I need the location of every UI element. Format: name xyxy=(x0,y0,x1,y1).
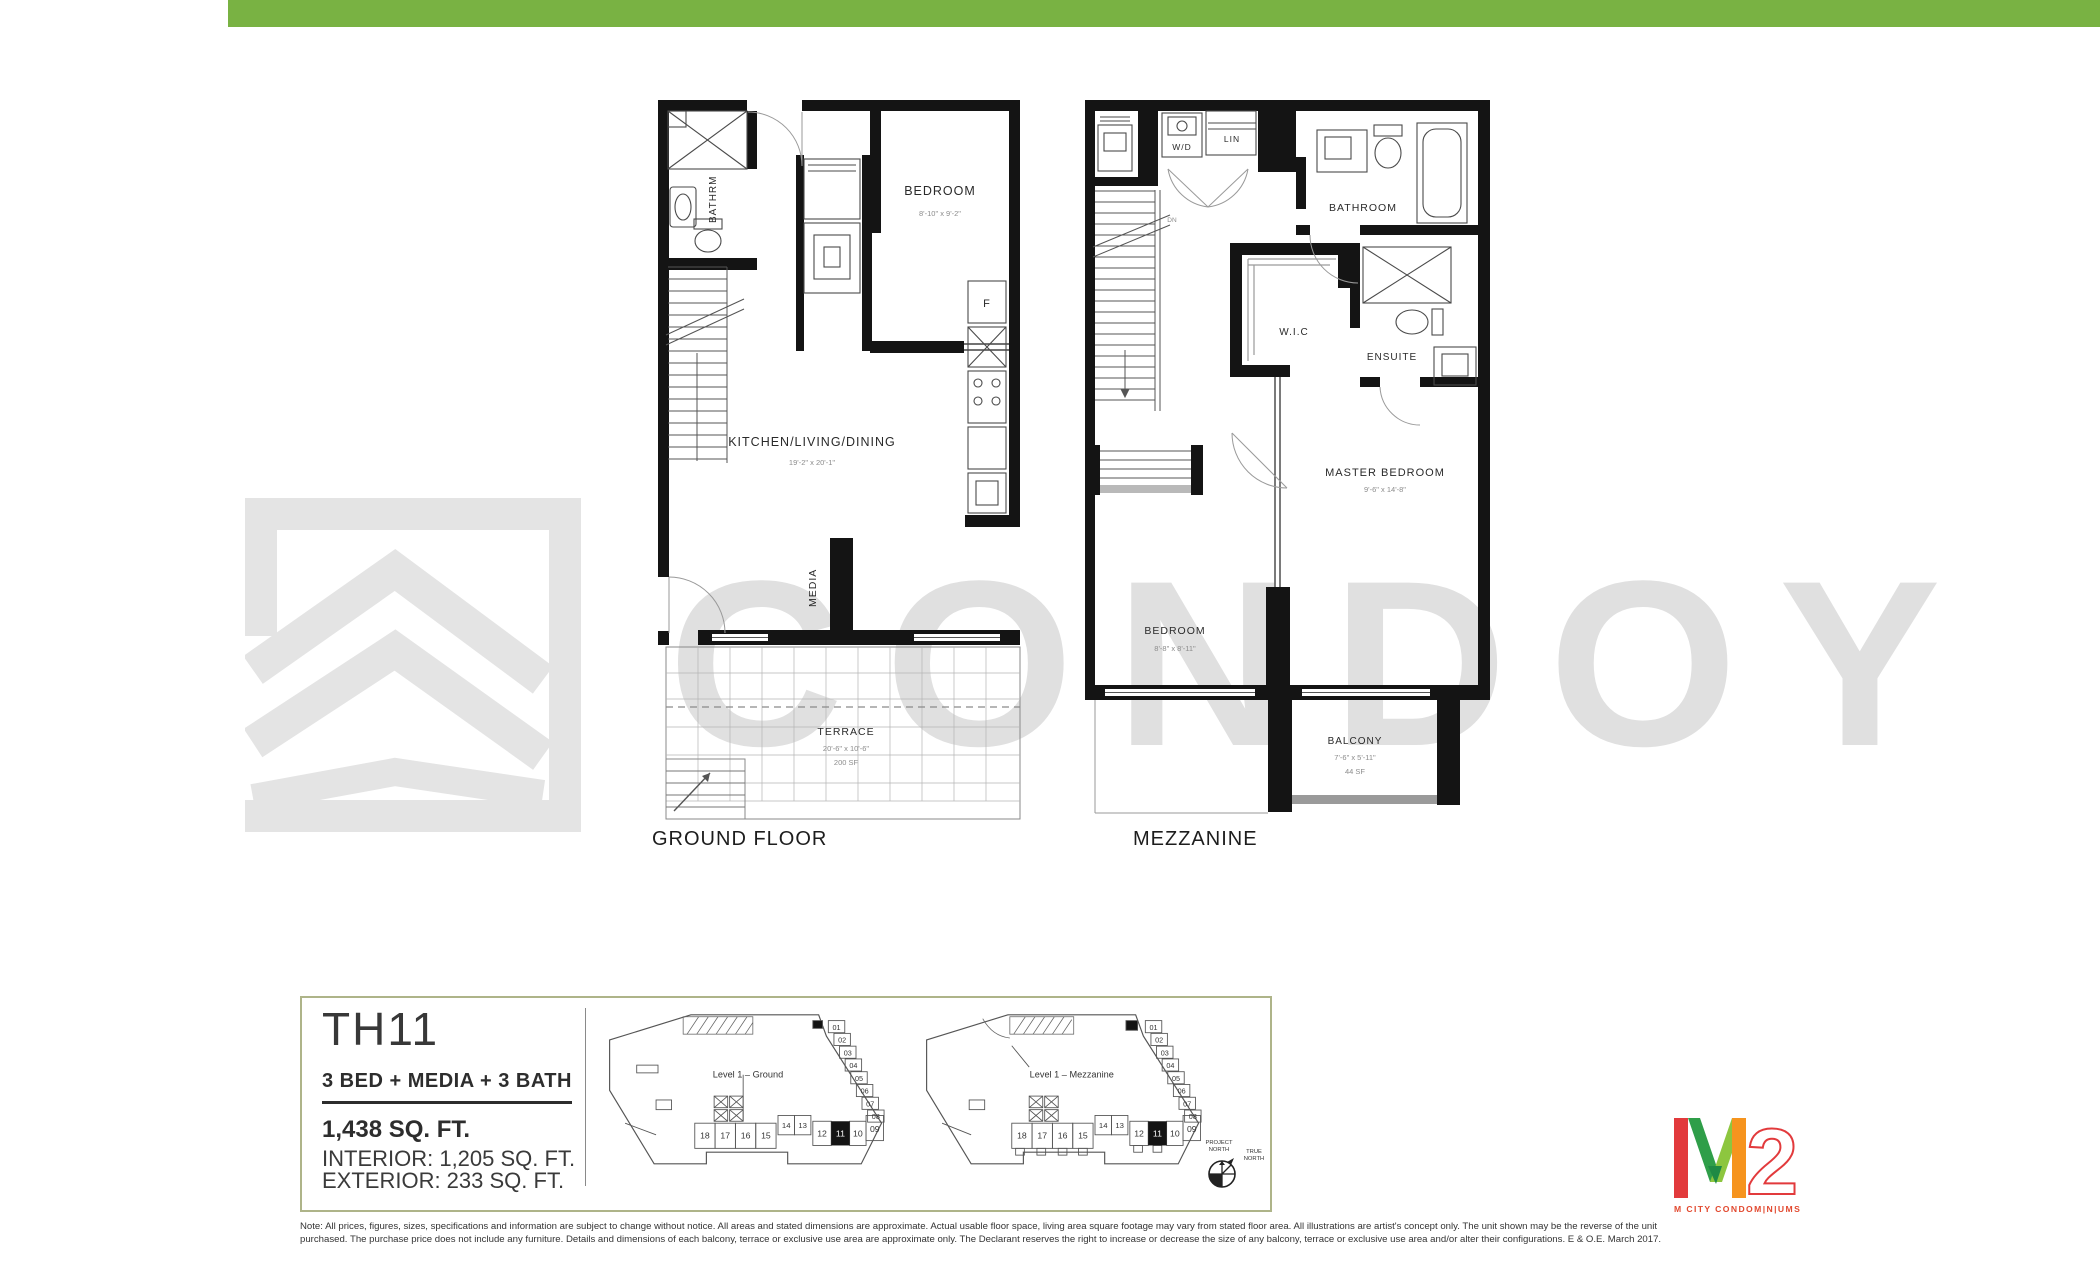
keyplan-ground-label: Level 1 – Ground xyxy=(713,1070,784,1080)
condoy-watermark-logo xyxy=(245,498,581,832)
master-bedroom-dim: 9'-6" x 14'-8" xyxy=(1364,485,1406,494)
ground-fridge-label: F xyxy=(983,298,991,310)
svg-text:07: 07 xyxy=(866,1099,874,1108)
svg-text:NORTH: NORTH xyxy=(1209,1147,1230,1153)
logo-tagline: M CITY CONDOM|N|UMS xyxy=(1674,1204,1801,1214)
svg-text:02: 02 xyxy=(838,1036,846,1045)
terrace-label: TERRACE xyxy=(817,726,874,738)
keyplan-mezzanine-label: Level 1 – Mezzanine xyxy=(1030,1070,1114,1080)
keyplan-ground: 01 02 03 04 05 06 07 08 18 17 16 15 14 1… xyxy=(598,1004,898,1194)
m-mark xyxy=(1674,1118,1746,1198)
disclaimer-line1: Note: All prices, figures, sizes, specif… xyxy=(300,1221,1920,1234)
svg-text:10: 10 xyxy=(853,1129,863,1139)
svg-text:17: 17 xyxy=(1037,1131,1047,1141)
svg-text:06: 06 xyxy=(861,1087,869,1096)
svg-text:16: 16 xyxy=(1058,1131,1068,1141)
ground-closet xyxy=(804,159,860,293)
svg-text:15: 15 xyxy=(1078,1131,1088,1141)
svg-text:08: 08 xyxy=(1189,1112,1197,1121)
svg-text:06: 06 xyxy=(1178,1087,1186,1096)
ground-floor-caption: GROUND FLOOR xyxy=(652,828,827,851)
top-accent-bar xyxy=(228,0,2100,27)
true-north-label: TRUE xyxy=(1246,1149,1262,1155)
wic-label: W.I.C xyxy=(1279,327,1308,338)
terrace-area-label: 200 SF xyxy=(834,758,859,767)
balcony-dim: 7'-6" x 5'-11" xyxy=(1334,753,1376,762)
svg-text:11: 11 xyxy=(836,1129,845,1139)
svg-text:11: 11 xyxy=(1153,1129,1162,1139)
svg-text:05: 05 xyxy=(855,1074,863,1083)
lin-label: LIN xyxy=(1224,134,1240,144)
mezz-thin-wall xyxy=(1275,377,1280,587)
keyplan-units: 01 02 03 04 05 06 07 08 18 17 16 15 14 1… xyxy=(1012,1021,1201,1156)
svg-text:02: 02 xyxy=(1155,1036,1163,1045)
ground-floor-plan: BATHRM BEDROOM 8'-10" x 9'-2" KITCHEN/LI… xyxy=(652,95,1024,825)
ensuite-fixtures xyxy=(1363,247,1476,385)
keyplan-mezzanine: 01 02 03 04 05 06 07 08 18 17 16 15 14 1… xyxy=(915,1004,1215,1194)
svg-text:NORTH: NORTH xyxy=(1244,1156,1265,1162)
svg-text:15: 15 xyxy=(761,1131,771,1141)
ground-bedroom-label: BEDROOM xyxy=(904,184,976,198)
ground-bathroom-label: BATHRM xyxy=(708,176,719,223)
balcony-label: BALCONY xyxy=(1328,736,1383,747)
master-bedroom-label: MASTER BEDROOM xyxy=(1325,467,1445,479)
ensuite-label: ENSUITE xyxy=(1367,352,1417,363)
mezz-closet-appliance xyxy=(1098,117,1132,171)
svg-text:03: 03 xyxy=(844,1048,852,1057)
svg-text:14: 14 xyxy=(1099,1121,1108,1130)
svg-text:13: 13 xyxy=(798,1121,807,1130)
balcony-area-label: 44 SF xyxy=(1345,767,1365,776)
mezzanine-walls xyxy=(1085,100,1490,812)
svg-text:05: 05 xyxy=(1172,1074,1180,1083)
mezz-bedroom-dim: 8'-8" x 8'-11" xyxy=(1154,644,1196,653)
svg-text:14: 14 xyxy=(782,1121,791,1130)
svg-text:04: 04 xyxy=(1166,1061,1174,1070)
terrace-dim: 20'-6" x 10'-6" xyxy=(823,744,869,753)
mezz-railing xyxy=(1088,445,1203,495)
svg-text:01: 01 xyxy=(1150,1023,1158,1032)
mezzanine-caption: MEZZANINE xyxy=(1133,828,1258,851)
ground-floor-windows xyxy=(712,344,1009,641)
svg-text:18: 18 xyxy=(1017,1131,1027,1141)
svg-text:16: 16 xyxy=(741,1131,751,1141)
svg-text:13: 13 xyxy=(1115,1121,1124,1130)
dn-label: DN xyxy=(1167,217,1177,224)
mezzanine-plan: W/D LIN DN BATHROOM W.I.C ENSUITE MASTER… xyxy=(1080,95,1500,825)
svg-text:04: 04 xyxy=(849,1061,857,1070)
svg-text:17: 17 xyxy=(720,1131,730,1141)
keyplan-hatch xyxy=(683,1017,753,1034)
disclaimer: Note: All prices, figures, sizes, specif… xyxy=(300,1221,1920,1246)
ground-door-arcs xyxy=(669,112,802,633)
mezz-stairs xyxy=(1093,190,1170,411)
m2-logo: 2 M CITY CONDOM|N|UMS xyxy=(1672,1110,1802,1216)
ground-bedroom-dim: 8'-10" x 9'-2" xyxy=(919,209,961,218)
project-north-label: PROJECT xyxy=(1205,1140,1233,1146)
wic-shelving xyxy=(1248,259,1336,361)
keyplan-hatch xyxy=(983,1017,1074,1038)
disclaimer-line2: purchased. The purchase price does not i… xyxy=(300,1234,1920,1247)
balcony-area xyxy=(1095,700,1437,813)
svg-text:07: 07 xyxy=(1183,1099,1191,1108)
ground-kitchen-dim: 19'-2" x 20'-1" xyxy=(789,458,835,467)
mezz-bedroom-label: BEDROOM xyxy=(1144,625,1205,637)
ground-stairs xyxy=(666,267,744,463)
svg-text:10: 10 xyxy=(1170,1129,1180,1139)
svg-text:01: 01 xyxy=(833,1023,841,1032)
mezz-bathroom-label: BATHROOM xyxy=(1329,202,1397,214)
ground-kitchen-appliances xyxy=(968,281,1006,513)
svg-text:12: 12 xyxy=(817,1129,827,1139)
svg-text:12: 12 xyxy=(1134,1129,1144,1139)
compass-rose: PROJECT NORTH TRUE NORTH xyxy=(1198,1134,1276,1192)
wd-label: W/D xyxy=(1172,142,1192,152)
keyplan-units: 01 02 03 04 05 06 07 08 18 17 16 15 14 1… xyxy=(695,1021,884,1149)
svg-text:09: 09 xyxy=(870,1124,880,1134)
svg-text:03: 03 xyxy=(1161,1048,1169,1057)
svg-text:18: 18 xyxy=(700,1131,710,1141)
ground-media-label: MEDIA xyxy=(807,569,819,607)
svg-text:08: 08 xyxy=(872,1112,880,1121)
svg-text:09: 09 xyxy=(1187,1124,1197,1134)
logo-two: 2 xyxy=(1746,1110,1798,1214)
ground-kitchen-label: KITCHEN/LIVING/DINING xyxy=(728,435,896,449)
